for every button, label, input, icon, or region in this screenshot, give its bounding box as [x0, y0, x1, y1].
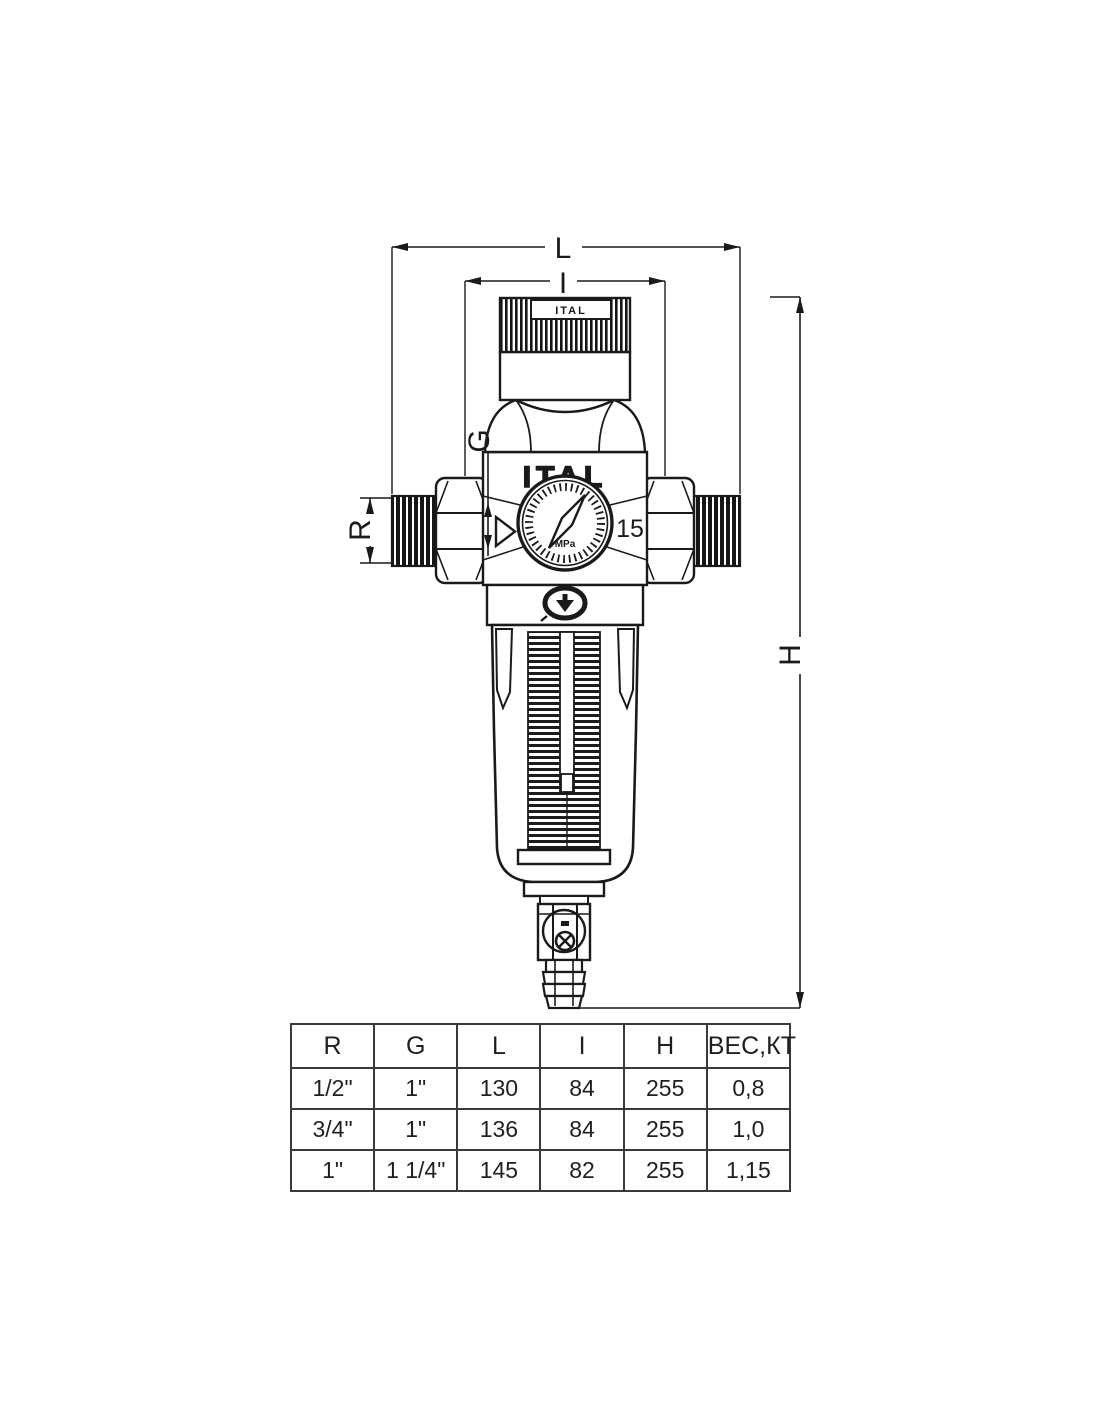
- dim-label-I: I: [559, 267, 567, 300]
- gauge-side-label: 15: [616, 515, 644, 543]
- table-header-row: R G L I H ВЕС,КТ: [291, 1024, 790, 1068]
- flush-band: [487, 585, 643, 625]
- outlet-thread: [694, 496, 740, 566]
- col-header-G: G: [374, 1024, 457, 1068]
- drain-valve: [524, 882, 604, 1008]
- cap-brand-plate: ITAL: [531, 300, 611, 319]
- col-header-H: H: [624, 1024, 707, 1068]
- cell: 145: [457, 1150, 540, 1191]
- adjustment-cap: ITAL: [500, 298, 630, 400]
- technical-drawing-page: ITAL ITAL MPa 15: [0, 0, 1100, 1422]
- table-row: 1" 1 1/4" 145 82 255 1,15: [291, 1150, 790, 1191]
- cell: 84: [540, 1068, 623, 1109]
- hose-barb: [543, 960, 585, 1008]
- cell: 255: [624, 1150, 707, 1191]
- dim-label-R: R: [344, 519, 377, 541]
- dim-label-L: L: [555, 232, 572, 265]
- valve-screw: [556, 932, 574, 950]
- cell: 1/2": [291, 1068, 374, 1109]
- cell: 1,15: [707, 1150, 790, 1191]
- dimension-R: R: [344, 498, 392, 563]
- cell: 136: [457, 1109, 540, 1150]
- cell: 84: [540, 1109, 623, 1150]
- table-row: 3/4" 1" 136 84 255 1,0: [291, 1109, 790, 1150]
- cartridge-flange: [518, 850, 610, 864]
- dim-label-H: H: [774, 644, 807, 666]
- union-nut-right: [642, 478, 694, 583]
- cell: 1 1/4": [374, 1150, 457, 1191]
- col-header-R: R: [291, 1024, 374, 1068]
- inlet-thread: [392, 496, 436, 566]
- col-header-weight: ВЕС,КТ: [707, 1024, 790, 1068]
- cell: 82: [540, 1150, 623, 1191]
- filter-bowl: [492, 625, 638, 882]
- dim-label-G: G: [463, 429, 496, 452]
- bonnet-crown: [485, 400, 645, 452]
- col-header-L: L: [457, 1024, 540, 1068]
- cell: 1": [291, 1150, 374, 1191]
- cell: 1": [374, 1068, 457, 1109]
- cap-plate-label: ITAL: [555, 305, 587, 317]
- cell: 130: [457, 1068, 540, 1109]
- dimension-table: R G L I H ВЕС,КТ 1/2" 1" 130 84 255 0,8 …: [290, 1023, 791, 1192]
- pressure-gauge: MPa: [518, 476, 612, 570]
- cell: 1,0: [707, 1109, 790, 1150]
- cell: 255: [624, 1109, 707, 1150]
- cell: 3/4": [291, 1109, 374, 1150]
- cell: 255: [624, 1068, 707, 1109]
- table-row: 1/2" 1" 130 84 255 0,8: [291, 1068, 790, 1109]
- union-nut-left: [436, 478, 488, 583]
- cell: 0,8: [707, 1068, 790, 1109]
- cell: 1": [374, 1109, 457, 1150]
- filter-technical-drawing: ITAL ITAL MPa 15: [0, 0, 1100, 1422]
- col-header-I: I: [540, 1024, 623, 1068]
